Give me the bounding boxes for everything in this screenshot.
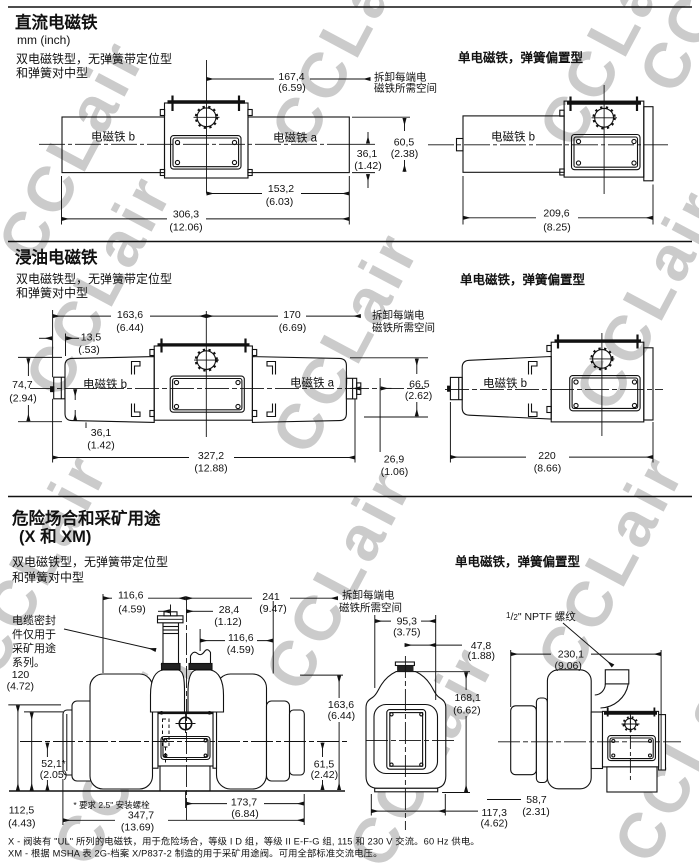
svg-text:电磁铁 a: 电磁铁 a bbox=[290, 376, 335, 390]
svg-text:(4.72): (4.72) bbox=[7, 680, 34, 692]
svg-text:(3.75): (3.75) bbox=[393, 626, 420, 638]
svg-text:(2.94): (2.94) bbox=[9, 393, 36, 405]
svg-text:采矿用途: 采矿用途 bbox=[12, 641, 56, 655]
svg-text:CCLair: CCLair bbox=[257, 219, 433, 465]
svg-text:(6.84): (6.84) bbox=[231, 808, 258, 820]
svg-text:(6.03): (6.03) bbox=[266, 196, 293, 208]
svg-text:拆卸每端电: 拆卸每端电 bbox=[342, 588, 395, 601]
svg-text:(.53): (.53) bbox=[78, 344, 100, 356]
svg-text:(12.06): (12.06) bbox=[169, 221, 202, 233]
svg-text:(4.43): (4.43) bbox=[8, 818, 35, 830]
svg-text:26,9: 26,9 bbox=[384, 454, 405, 466]
svg-text:347,7: 347,7 bbox=[128, 810, 154, 822]
svg-text:(2.31): (2.31) bbox=[522, 806, 549, 818]
svg-text:(1.06): (1.06) bbox=[381, 466, 408, 478]
svg-text:(6.44): (6.44) bbox=[116, 322, 143, 334]
svg-text:双电磁铁型，无弹簧带定位型: 双电磁铁型，无弹簧带定位型 bbox=[16, 51, 172, 66]
svg-text:58,7: 58,7 bbox=[526, 794, 547, 806]
svg-text:* 要求 2.5" 安装螺栓: * 要求 2.5" 安装螺栓 bbox=[73, 800, 150, 810]
svg-text:(6.44): (6.44) bbox=[328, 710, 355, 722]
svg-text:(8.66): (8.66) bbox=[534, 462, 561, 474]
svg-text:13,5: 13,5 bbox=[81, 332, 102, 344]
svg-text:(1.88): (1.88) bbox=[468, 650, 495, 662]
svg-text:单电磁铁，弹簧偏置型: 单电磁铁，弹簧偏置型 bbox=[460, 272, 586, 287]
svg-text:X - 阀装有 "UL" 所列的电磁铁，用于危险场合，等级: X - 阀装有 "UL" 所列的电磁铁，用于危险场合，等级 I D 组，等级 I… bbox=[8, 836, 480, 847]
svg-text:(2.62): (2.62) bbox=[405, 390, 432, 402]
svg-text:(6.62): (6.62) bbox=[453, 705, 480, 717]
svg-text:(4.59): (4.59) bbox=[227, 644, 254, 656]
svg-text:116,6: 116,6 bbox=[228, 632, 254, 644]
svg-text:磁铁所需空间: 磁铁所需空间 bbox=[374, 82, 437, 95]
svg-text:电缆密封: 电缆密封 bbox=[12, 613, 56, 627]
svg-text:(4.59): (4.59) bbox=[118, 603, 145, 615]
svg-text:磁铁所需空间: 磁铁所需空间 bbox=[372, 321, 435, 334]
svg-text:(9.06): (9.06) bbox=[554, 660, 581, 672]
svg-text:60,5: 60,5 bbox=[394, 137, 415, 149]
svg-text:直流电磁铁: 直流电磁铁 bbox=[15, 12, 98, 32]
svg-text:153,2: 153,2 bbox=[268, 183, 294, 195]
svg-text:(2.42): (2.42) bbox=[311, 769, 338, 781]
svg-text:系列。: 系列。 bbox=[12, 655, 45, 669]
svg-text:327,2: 327,2 bbox=[198, 450, 224, 462]
svg-text:74,7: 74,7 bbox=[12, 379, 33, 391]
svg-text:168,1: 168,1 bbox=[455, 692, 481, 704]
svg-text:(8.25): (8.25) bbox=[543, 222, 570, 234]
svg-text:(6.69): (6.69) bbox=[279, 322, 306, 334]
svg-text:28,4: 28,4 bbox=[219, 604, 240, 616]
svg-text:1/2" NPTF 螺纹: 1/2" NPTF 螺纹 bbox=[506, 610, 576, 623]
svg-text:66,5: 66,5 bbox=[409, 378, 430, 390]
svg-text:241: 241 bbox=[262, 591, 280, 603]
svg-text:120: 120 bbox=[12, 669, 30, 681]
svg-text:电磁铁 b: 电磁铁 b bbox=[91, 130, 135, 144]
svg-text:和弹簧对中型: 和弹簧对中型 bbox=[16, 285, 88, 300]
svg-text:mm (inch): mm (inch) bbox=[17, 33, 70, 47]
svg-text:(X 和 XM): (X 和 XM) bbox=[19, 527, 91, 546]
svg-text:双电磁铁型，无弹簧带定位型: 双电磁铁型，无弹簧带定位型 bbox=[16, 271, 172, 286]
svg-text:36,1: 36,1 bbox=[91, 427, 112, 439]
svg-text:件仅用于: 件仅用于 bbox=[12, 628, 56, 641]
svg-text:电磁铁 b: 电磁铁 b bbox=[483, 376, 527, 390]
svg-text:(6.59): (6.59) bbox=[278, 82, 305, 94]
svg-text:116,6: 116,6 bbox=[118, 590, 144, 602]
svg-text:单电磁铁，弹簧偏置型: 单电磁铁，弹簧偏置型 bbox=[458, 50, 584, 65]
svg-text:单电磁铁，弹簧偏置型: 单电磁铁，弹簧偏置型 bbox=[455, 554, 581, 569]
svg-text:36,1: 36,1 bbox=[357, 148, 378, 160]
svg-text:磁铁所需空间: 磁铁所需空间 bbox=[339, 601, 402, 614]
svg-text:209,6: 209,6 bbox=[543, 207, 569, 219]
svg-text:双电磁铁型，无弹簧带定位型: 双电磁铁型，无弹簧带定位型 bbox=[12, 554, 168, 569]
svg-text:170: 170 bbox=[283, 309, 301, 321]
svg-text:危险场合和采矿用途: 危险场合和采矿用途 bbox=[11, 508, 161, 528]
svg-text:167,4: 167,4 bbox=[278, 71, 304, 83]
svg-text:浸油电磁铁: 浸油电磁铁 bbox=[15, 247, 98, 267]
svg-text:和弹簧对中型: 和弹簧对中型 bbox=[16, 65, 88, 80]
svg-text:电磁铁 b: 电磁铁 b bbox=[83, 377, 127, 391]
svg-text:(2.38): (2.38) bbox=[391, 148, 418, 160]
svg-text:(9.47): (9.47) bbox=[259, 603, 286, 615]
svg-text:拆卸每端电: 拆卸每端电 bbox=[372, 308, 425, 321]
svg-text:CCLair: CCLair bbox=[560, 176, 699, 422]
svg-text:163,6: 163,6 bbox=[117, 309, 143, 321]
svg-text:(1.42): (1.42) bbox=[87, 439, 114, 451]
svg-text:电磁铁 a: 电磁铁 a bbox=[273, 131, 318, 145]
svg-text:112,5: 112,5 bbox=[9, 805, 35, 817]
svg-text:(1.42): (1.42) bbox=[354, 160, 381, 172]
svg-text:230,1: 230,1 bbox=[558, 648, 584, 660]
svg-text:和弹簧对中型: 和弹簧对中型 bbox=[12, 570, 84, 585]
svg-text:220: 220 bbox=[538, 450, 556, 462]
svg-text:(12.88): (12.88) bbox=[194, 463, 227, 475]
svg-text:XM - 根据 MSHA 表 2G-档案 X/P837-2: XM - 根据 MSHA 表 2G-档案 X/P837-2 制造的用于采矿用途阀… bbox=[8, 848, 383, 859]
svg-text:(1.12): (1.12) bbox=[214, 616, 241, 628]
svg-text:306,3: 306,3 bbox=[173, 209, 199, 221]
svg-text:电磁铁 b: 电磁铁 b bbox=[491, 130, 535, 144]
svg-text:173,7: 173,7 bbox=[231, 797, 257, 809]
svg-text:(13.69): (13.69) bbox=[121, 821, 154, 833]
svg-text:(4.62): (4.62) bbox=[480, 818, 507, 830]
